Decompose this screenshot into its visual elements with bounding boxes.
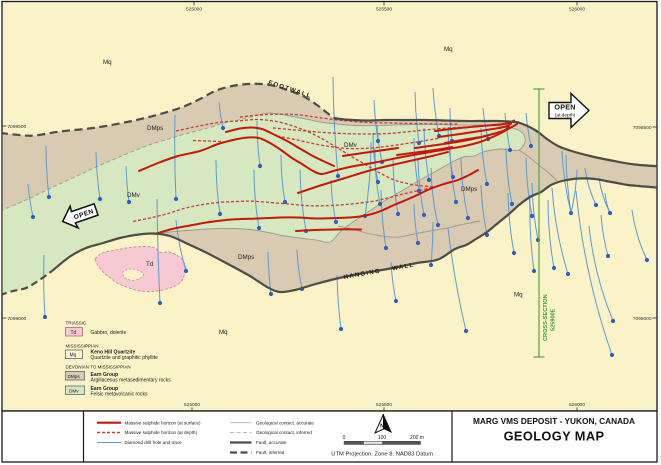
svg-text:DMv: DMv [69, 389, 79, 394]
svg-text:0: 0 [343, 435, 346, 441]
svg-text:N: N [380, 424, 384, 430]
svg-text:Massive sulphide horizon (at d: Massive sulphide horizon (at depth) [125, 430, 198, 435]
svg-text:526000: 526000 [569, 7, 585, 13]
svg-text:Mq: Mq [103, 59, 112, 66]
svg-text:DMv: DMv [127, 192, 141, 199]
svg-text:200 m: 200 m [410, 435, 424, 441]
svg-text:Geological contact, accurate: Geological contact, accurate [256, 420, 314, 425]
svg-text:MISSISSIPPIAN: MISSISSIPPIAN [66, 344, 99, 349]
svg-text:DMps: DMps [147, 125, 163, 132]
svg-text:CROSS-SECTION: CROSS-SECTION [543, 294, 549, 341]
svg-text:525000: 525000 [184, 402, 200, 408]
svg-text:Geological contact, inferred: Geological contact, inferred [256, 430, 312, 435]
svg-text:MARG VMS DEPOSIT - YUKON, CANA: MARG VMS DEPOSIT - YUKON, CANADA [473, 416, 635, 426]
svg-text:DMv: DMv [344, 142, 358, 149]
svg-text:Mq: Mq [70, 353, 77, 359]
svg-text:DMps: DMps [461, 186, 477, 193]
svg-text:Argillaceous metasedimentary r: Argillaceous metasedimentary rocks [91, 378, 172, 384]
svg-text:526000: 526000 [569, 402, 585, 408]
svg-text:Quartzite and graphitic phylli: Quartzite and graphitic phyllite [91, 355, 158, 361]
svg-text:Mq: Mq [514, 292, 523, 299]
svg-text:7098000: 7098000 [8, 316, 27, 322]
svg-text:525500: 525500 [376, 402, 392, 408]
svg-text:Fault, accurate: Fault, accurate [256, 440, 287, 445]
svg-text:DMps: DMps [238, 254, 254, 261]
svg-text:Diamond drill hole and trace: Diamond drill hole and trace [125, 440, 183, 445]
svg-text:DEVONIAN TO MISSISSIPPIAN: DEVONIAN TO MISSISSIPPIAN [66, 365, 131, 370]
svg-text:Mq: Mq [219, 329, 228, 336]
svg-text:Td: Td [71, 330, 77, 336]
svg-text:GEOLOGY MAP: GEOLOGY MAP [504, 429, 605, 444]
svg-text:7098500: 7098500 [633, 125, 652, 131]
svg-text:UTM Projection. Zone 8. NAD83: UTM Projection. Zone 8. NAD83 Datum. [331, 452, 435, 458]
svg-text:Fault, inferred: Fault, inferred [256, 450, 285, 455]
svg-text:7098500: 7098500 [8, 124, 27, 130]
svg-text:7098000: 7098000 [633, 316, 652, 322]
svg-text:100: 100 [378, 435, 387, 441]
svg-text:OPEN: OPEN [554, 103, 575, 112]
svg-text:Mq: Mq [444, 46, 453, 53]
svg-text:Td: Td [146, 261, 154, 268]
svg-text:525500: 525500 [376, 7, 392, 13]
svg-text:(at depth): (at depth) [555, 113, 576, 119]
svg-text:Gabbro, dolerite: Gabbro, dolerite [91, 330, 127, 336]
svg-text:TRIASSIC: TRIASSIC [66, 321, 88, 326]
svg-text:Massive sulphide horizon (at s: Massive sulphide horizon (at surface) [125, 420, 202, 425]
svg-text:Felsic metavolcanic rocks: Felsic metavolcanic rocks [91, 392, 148, 398]
svg-text:525900E: 525900E [551, 308, 557, 331]
svg-text:DMps: DMps [68, 374, 81, 379]
svg-text:525000: 525000 [186, 7, 202, 13]
